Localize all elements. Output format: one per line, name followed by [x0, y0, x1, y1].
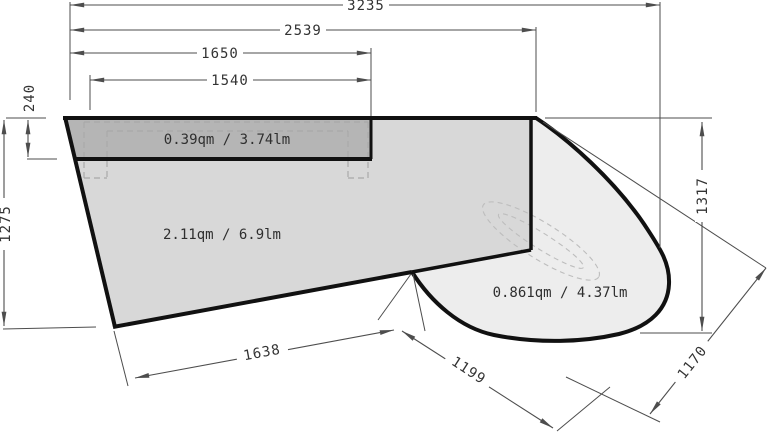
- area-label-main: 2.11qm / 6.9lm: [163, 227, 281, 243]
- dimension-1638-label: 1638: [242, 342, 282, 365]
- dimension-3235: 3235: [70, 0, 660, 14]
- area-label-round: 0.861qm / 4.37lm: [493, 285, 628, 301]
- dimension-1317-label: 1317: [695, 177, 711, 215]
- dimension-240-label: 240: [22, 84, 38, 112]
- dimension-2539-label: 2539: [284, 23, 322, 39]
- dimension-1275: 1275: [0, 120, 14, 326]
- dimension-1540: 1540: [90, 73, 371, 89]
- dimension-1540-label: 1540: [211, 73, 249, 89]
- dimension-1650-label: 1650: [201, 46, 239, 62]
- dimension-1199-label: 1199: [448, 354, 488, 388]
- dimension-1199: 1199: [402, 331, 553, 428]
- dimension-1170-label: 1170: [675, 343, 711, 382]
- dimension-1650: 1650: [70, 46, 371, 62]
- technical-drawing: 3235 2539 1650 1540 240 1275 1317: [0, 0, 768, 432]
- dimension-1275-label: 1275: [0, 205, 14, 243]
- area-label-strip: 0.39qm / 3.74lm: [164, 132, 290, 148]
- dimension-3235-label: 3235: [347, 0, 385, 14]
- dimension-2539: 2539: [70, 23, 536, 39]
- dimension-1638: 1638: [135, 330, 394, 378]
- dimension-240: 240: [22, 84, 38, 157]
